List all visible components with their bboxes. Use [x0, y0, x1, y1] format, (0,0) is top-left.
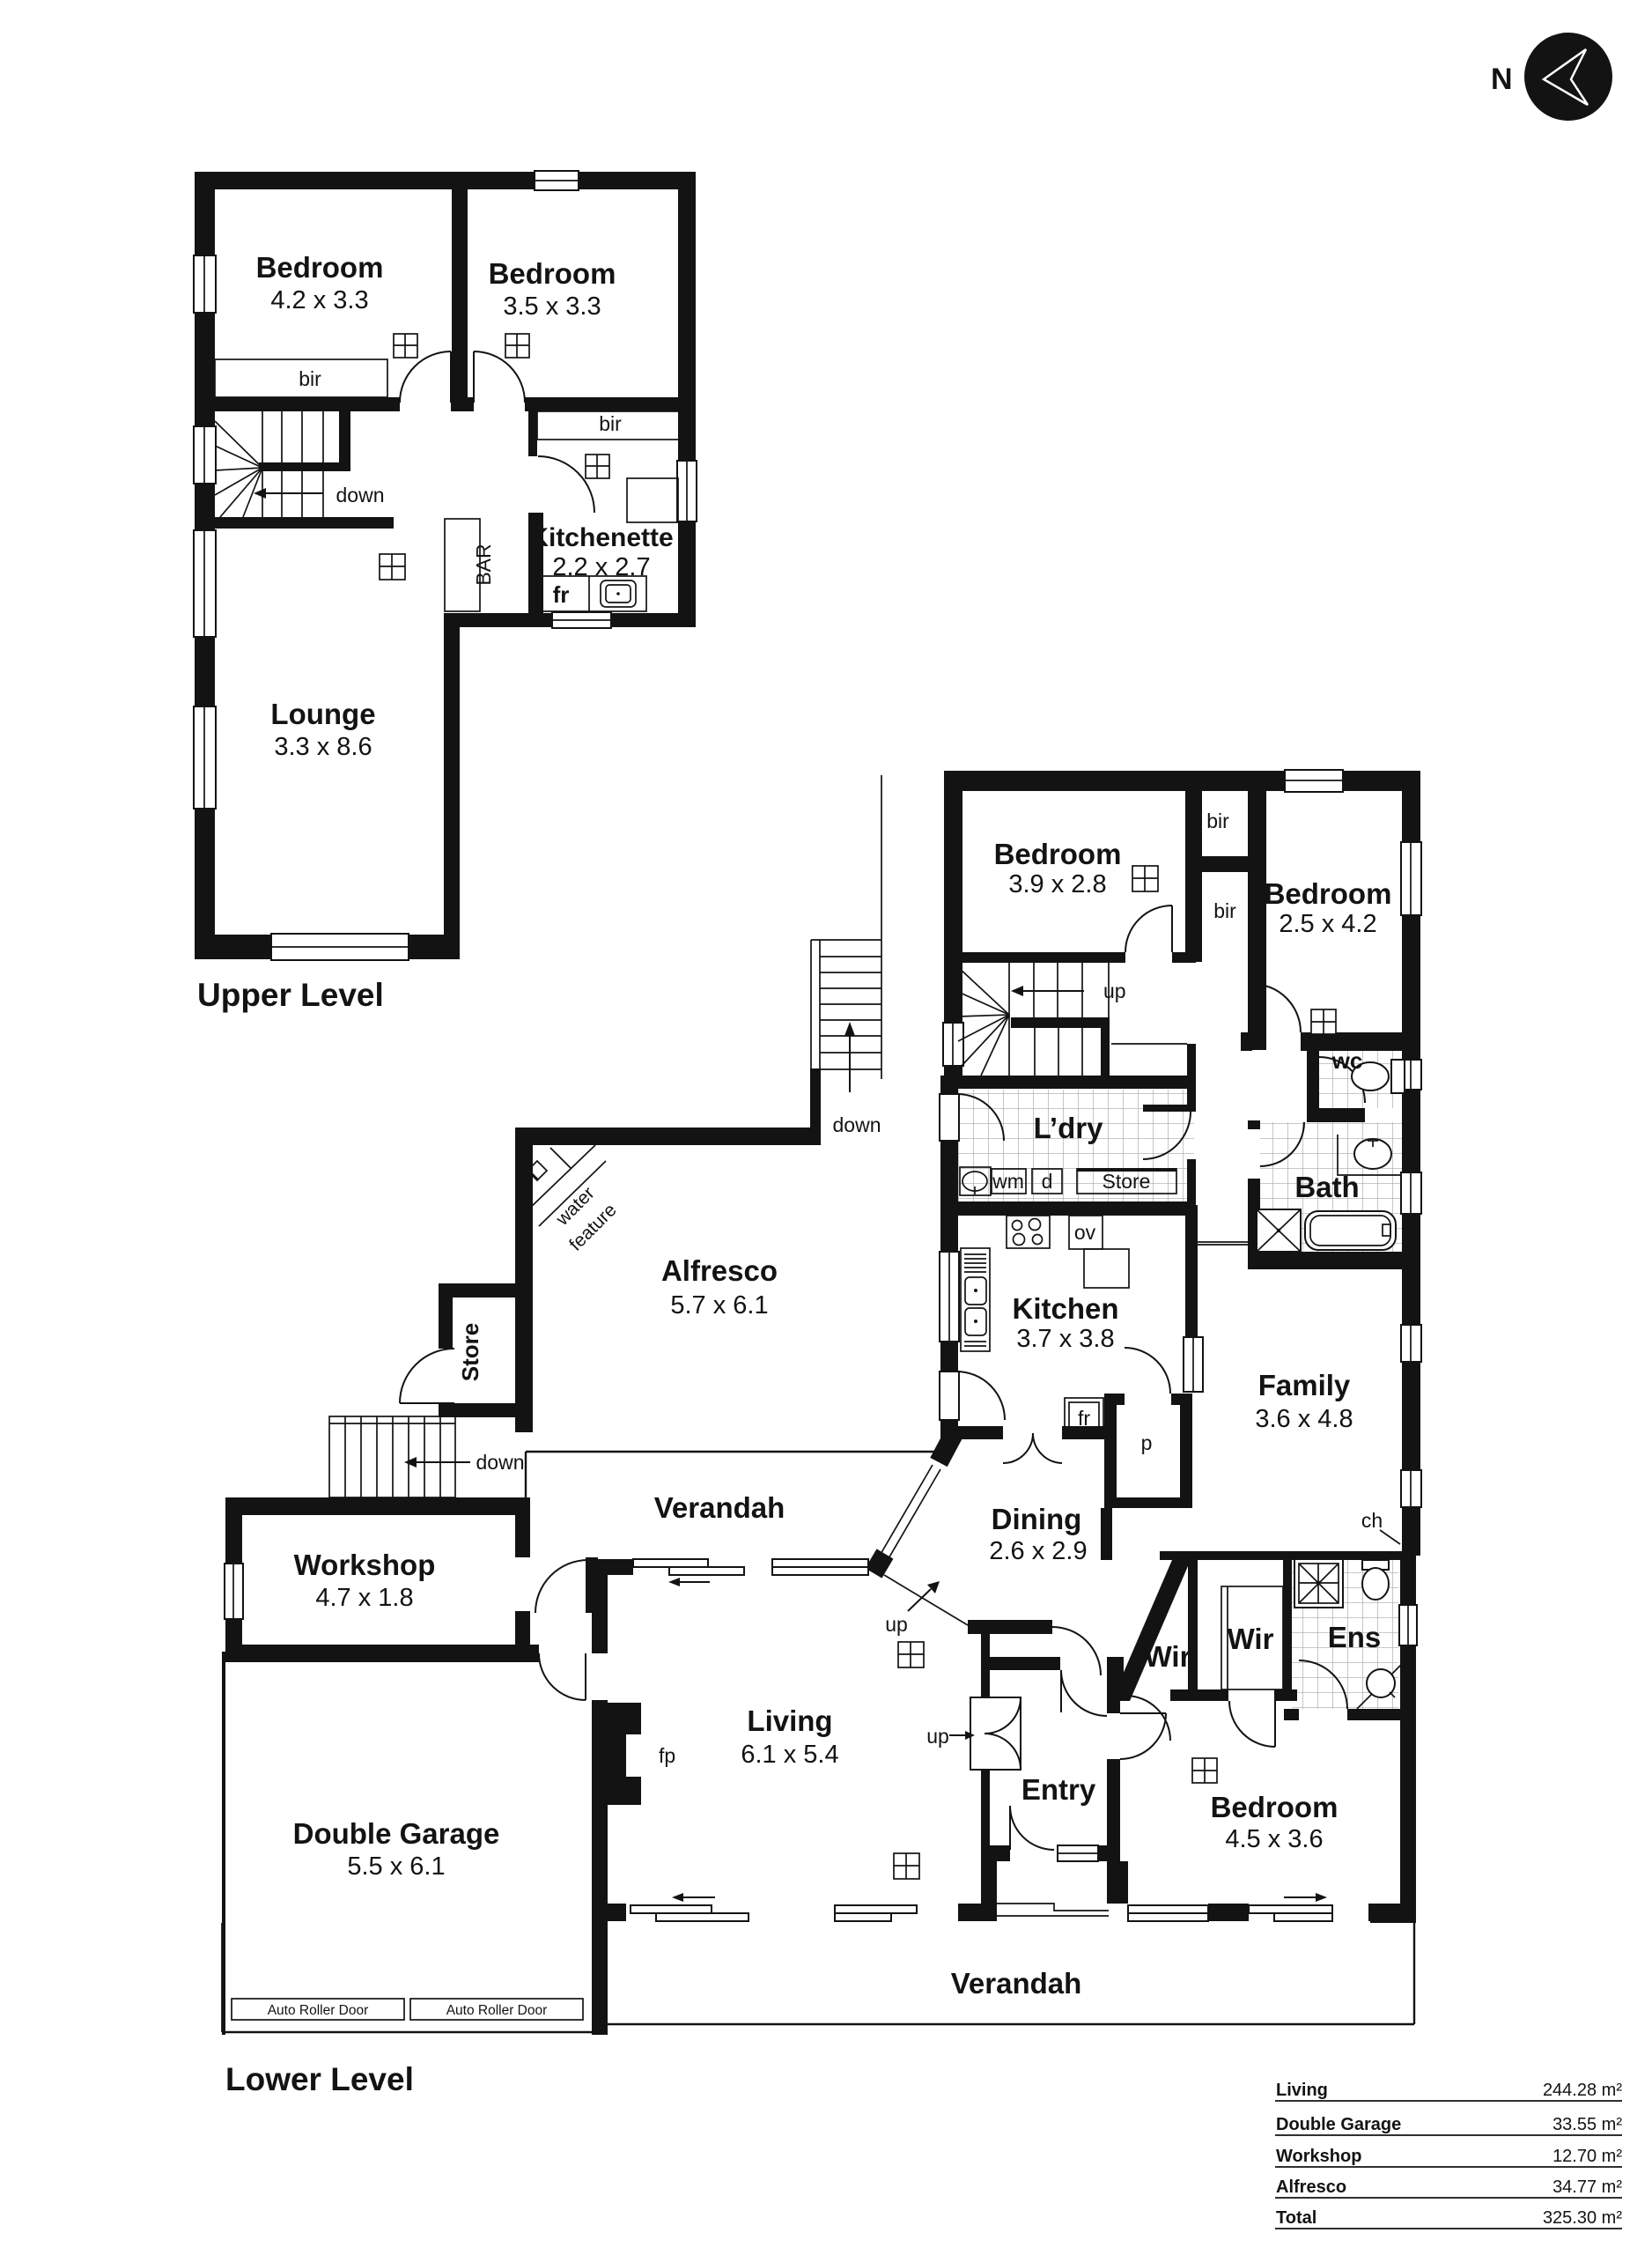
svg-text:3.6 x 4.8: 3.6 x 4.8 — [1255, 1405, 1353, 1433]
svg-text:BAR: BAR — [472, 543, 495, 585]
svg-text:up: up — [1103, 980, 1126, 1002]
svg-text:Upper Level: Upper Level — [197, 977, 384, 1013]
svg-text:d: d — [1042, 1170, 1053, 1193]
svg-text:wc: wc — [1331, 1047, 1363, 1074]
svg-text:Bedroom: Bedroom — [994, 838, 1122, 870]
svg-text:325.30 m²: 325.30 m² — [1543, 2208, 1622, 2228]
svg-text:Auto Roller Door: Auto Roller Door — [446, 2003, 548, 2018]
svg-text:3.5 x 3.3: 3.5 x 3.3 — [503, 292, 601, 321]
svg-text:Bedroom: Bedroom — [1211, 1791, 1339, 1823]
svg-text:3.7 x 3.8: 3.7 x 3.8 — [1016, 1325, 1114, 1353]
svg-text:Bedroom: Bedroom — [1265, 877, 1392, 910]
svg-text:Auto Roller Door: Auto Roller Door — [268, 2003, 369, 2018]
svg-text:wm: wm — [992, 1170, 1024, 1193]
svg-text:4.5 x 3.6: 4.5 x 3.6 — [1225, 1825, 1323, 1853]
svg-text:Bedroom: Bedroom — [256, 251, 384, 284]
svg-text:3.9 x 2.8: 3.9 x 2.8 — [1008, 870, 1106, 898]
svg-text:Double Garage: Double Garage — [1276, 2115, 1401, 2134]
svg-text:Verandah: Verandah — [654, 1491, 785, 1524]
svg-text:N: N — [1491, 63, 1513, 96]
svg-text:Double Garage: Double Garage — [293, 1817, 500, 1850]
svg-text:L’dry: L’dry — [1034, 1112, 1104, 1144]
svg-text:Total: Total — [1276, 2208, 1316, 2228]
svg-text:Kitchen: Kitchen — [1012, 1292, 1118, 1325]
svg-text:Alfresco: Alfresco — [1276, 2177, 1346, 2197]
svg-text:3.3 x 8.6: 3.3 x 8.6 — [274, 733, 372, 761]
svg-text:bir: bir — [599, 412, 622, 435]
svg-text:5.7 x 6.1: 5.7 x 6.1 — [670, 1291, 768, 1320]
svg-text:up: up — [926, 1725, 949, 1748]
svg-text:Workshop: Workshop — [294, 1549, 436, 1581]
svg-text:down: down — [833, 1113, 881, 1136]
svg-text:12.70 m²: 12.70 m² — [1552, 2147, 1622, 2166]
svg-text:Living: Living — [747, 1704, 832, 1737]
svg-text:Entry: Entry — [1021, 1773, 1096, 1806]
svg-text:Workshop: Workshop — [1276, 2147, 1361, 2166]
svg-text:bir: bir — [299, 367, 321, 390]
svg-text:fr: fr — [553, 581, 570, 608]
svg-text:Verandah: Verandah — [951, 1967, 1082, 2000]
svg-text:Kitchenette: Kitchenette — [529, 523, 673, 552]
svg-text:bir: bir — [1213, 899, 1236, 922]
svg-text:ov: ov — [1074, 1221, 1096, 1244]
svg-text:p: p — [1141, 1431, 1153, 1454]
svg-text:Dining: Dining — [992, 1503, 1082, 1535]
svg-text:34.77 m²: 34.77 m² — [1552, 2177, 1622, 2197]
svg-text:Lounge: Lounge — [270, 698, 375, 730]
svg-text:down: down — [476, 1451, 525, 1474]
svg-text:Bedroom: Bedroom — [489, 257, 616, 290]
svg-text:down: down — [336, 484, 385, 506]
svg-text:4.2 x 3.3: 4.2 x 3.3 — [270, 286, 368, 314]
svg-text:bir: bir — [1206, 810, 1229, 832]
svg-text:6.1 x 5.4: 6.1 x 5.4 — [741, 1741, 838, 1769]
svg-text:2.2 x 2.7: 2.2 x 2.7 — [552, 553, 650, 581]
svg-text:up: up — [885, 1613, 908, 1636]
svg-text:fr: fr — [1078, 1407, 1090, 1430]
svg-text:2.5 x 4.2: 2.5 x 4.2 — [1279, 910, 1376, 938]
svg-text:244.28 m²: 244.28 m² — [1543, 2081, 1622, 2100]
svg-text:4.7 x 1.8: 4.7 x 1.8 — [315, 1584, 413, 1612]
svg-text:Wir: Wir — [1145, 1640, 1191, 1673]
svg-text:Ens: Ens — [1328, 1621, 1382, 1653]
svg-text:ch: ch — [1361, 1509, 1383, 1532]
svg-text:5.5 x 6.1: 5.5 x 6.1 — [347, 1852, 445, 1881]
svg-text:Living: Living — [1276, 2081, 1328, 2100]
svg-text:Store: Store — [1103, 1170, 1151, 1193]
svg-text:Wir: Wir — [1228, 1623, 1274, 1655]
svg-text:33.55 m²: 33.55 m² — [1552, 2115, 1622, 2134]
svg-text:Alfresco: Alfresco — [661, 1254, 778, 1287]
svg-text:Bath: Bath — [1294, 1171, 1359, 1203]
svg-text:2.6 x 2.9: 2.6 x 2.9 — [989, 1537, 1087, 1565]
svg-text:fp: fp — [659, 1744, 675, 1767]
svg-text:Family: Family — [1258, 1369, 1351, 1401]
svg-text:Store: Store — [457, 1323, 483, 1381]
svg-text:Lower Level: Lower Level — [225, 2061, 414, 2097]
